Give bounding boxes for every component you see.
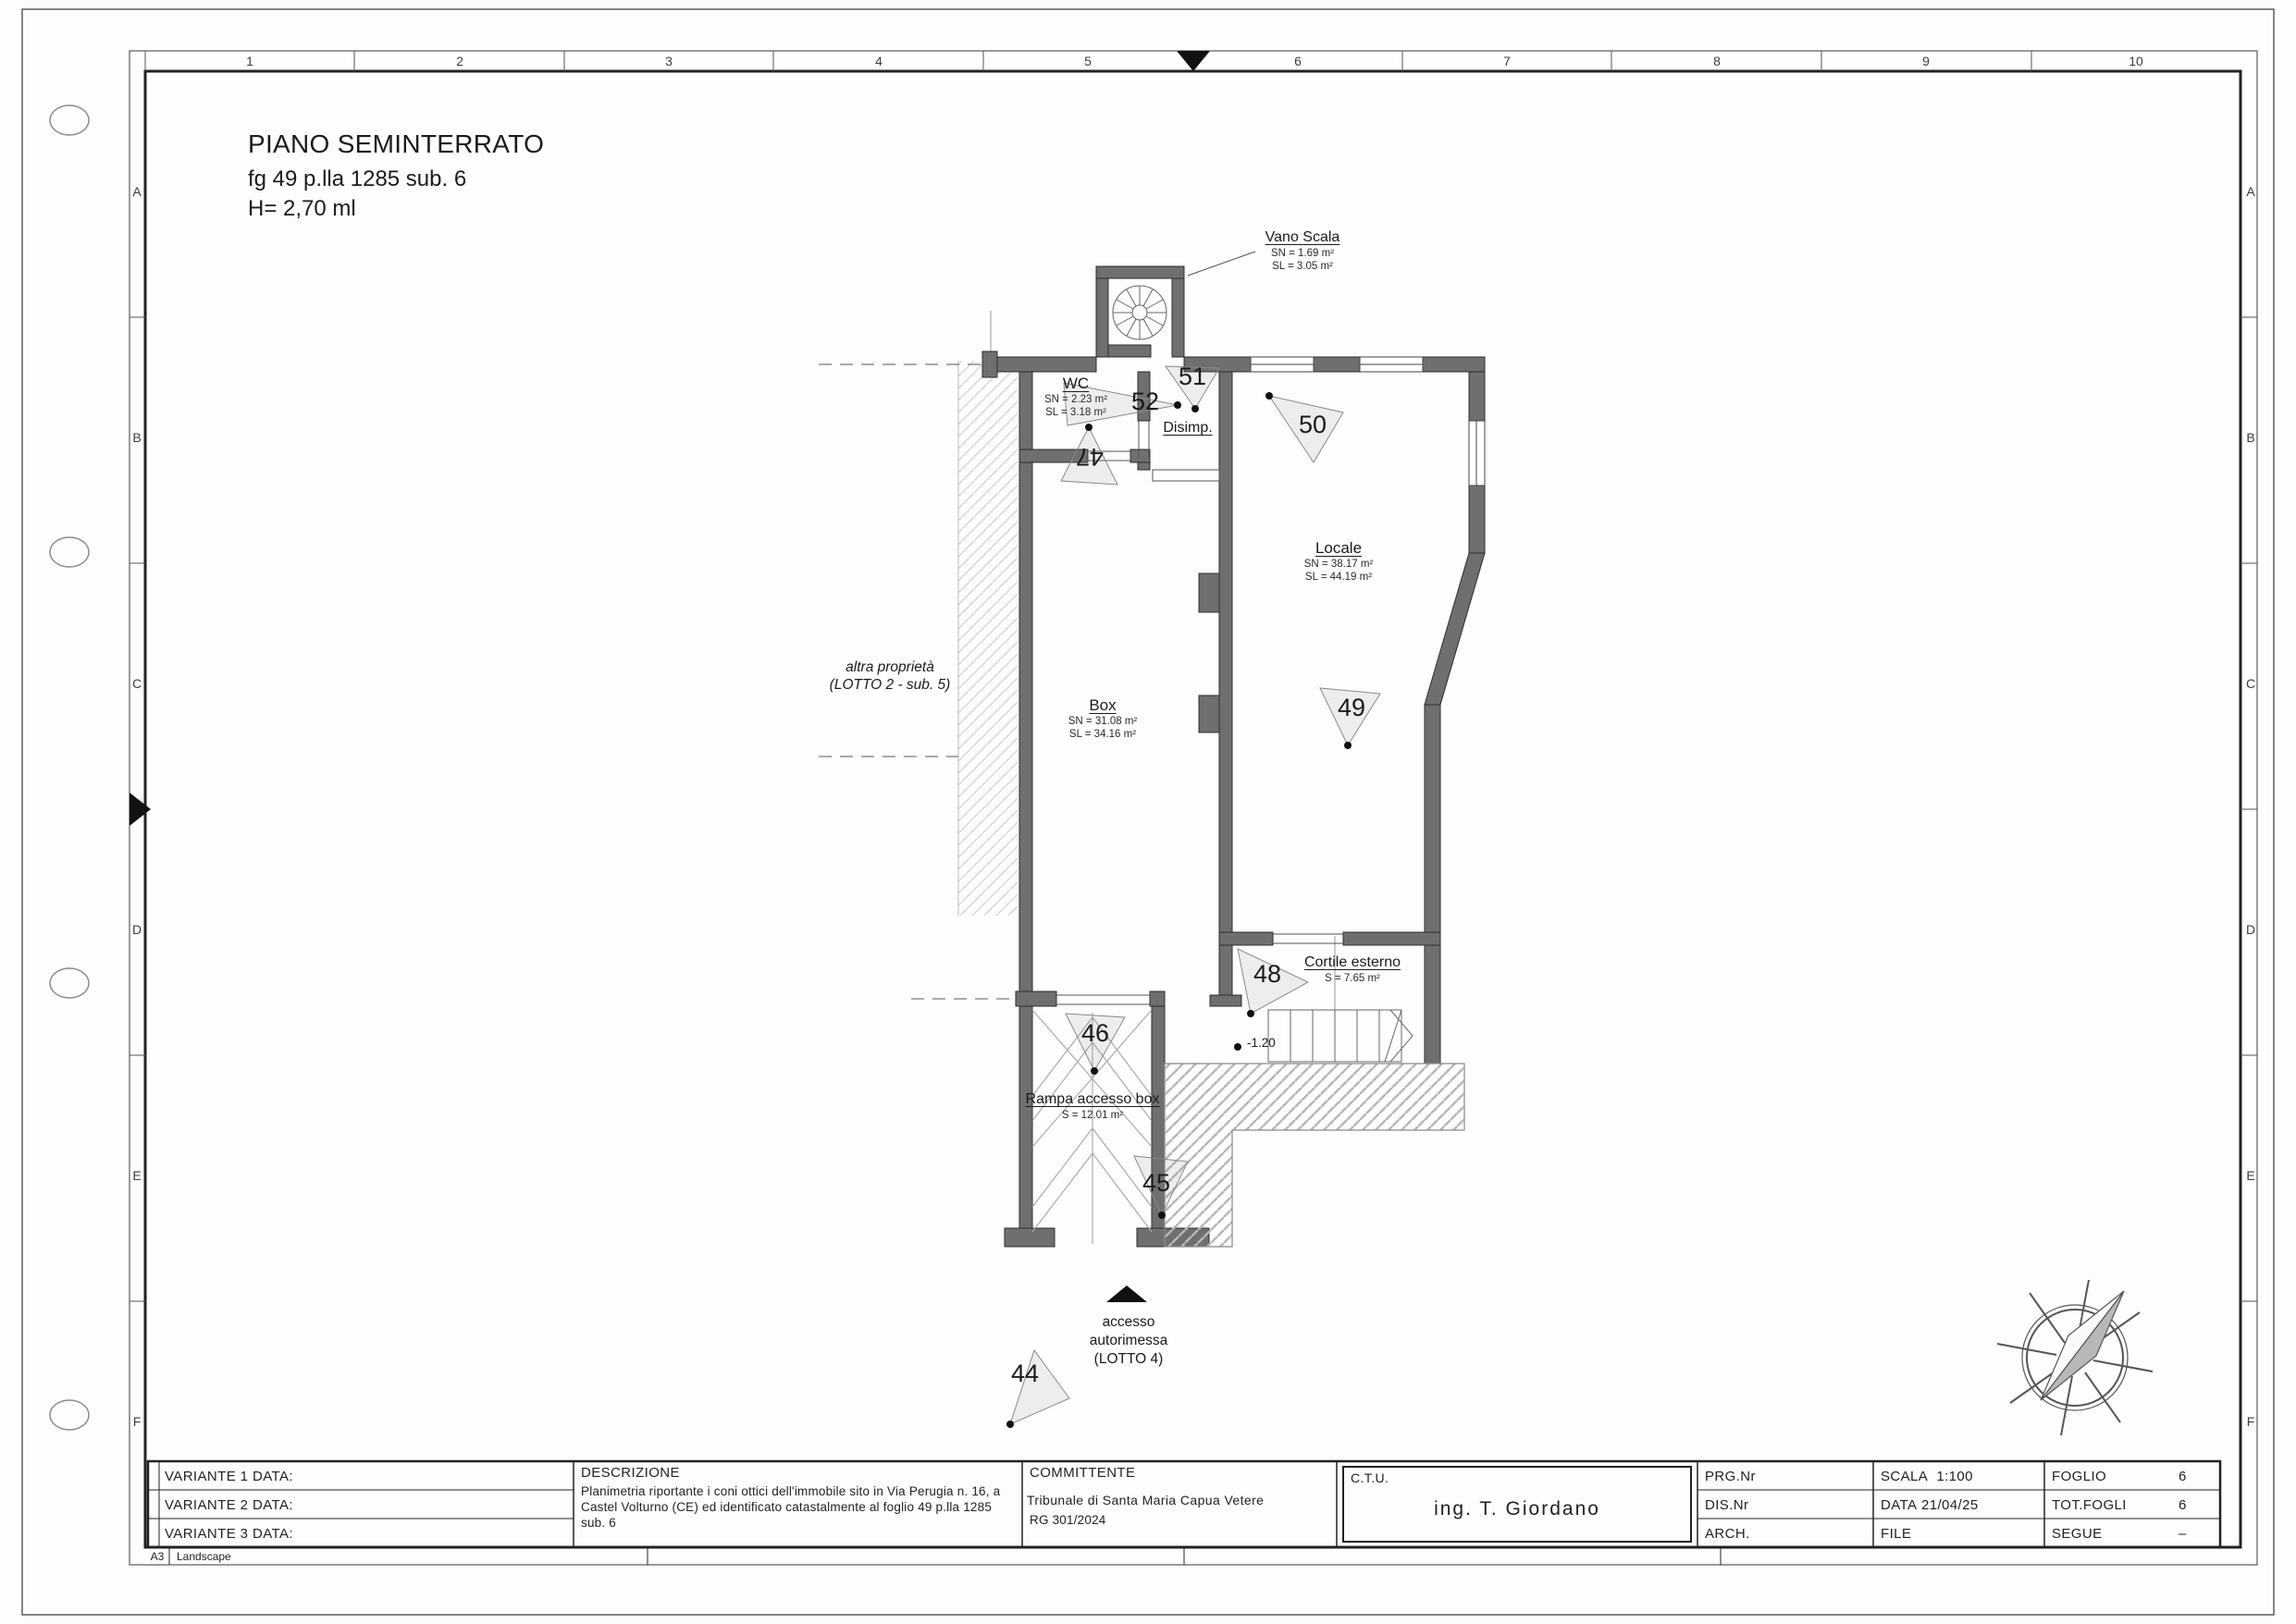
room-label-wc: WC SN = 2.23 m² SL = 3.18 m²	[1044, 374, 1107, 419]
plan-subtitle-height: H= 2,70 ml	[248, 196, 356, 222]
data-value: 21/04/25	[1921, 1497, 1979, 1513]
room-sn: SN = 31.08 m²	[1068, 715, 1137, 728]
scala-value: 1:100	[1936, 1469, 1973, 1484]
room-sn: SN = 1.69 m²	[1265, 247, 1340, 260]
level-mark-text: -1.20	[1247, 1036, 1276, 1050]
note-line: (LOTTO 2 - sub. 5)	[830, 676, 951, 694]
grid-col-8: 8	[1698, 54, 1735, 68]
room-sl: SL = 44.19 m²	[1304, 571, 1373, 584]
view-cone-52: 52	[1117, 388, 1173, 416]
room-label-vano-scala: Vano Scala SN = 1.69 m² SL = 3.05 m²	[1265, 228, 1340, 273]
grid-row-b-right: B	[2242, 430, 2259, 445]
totfogli-label: TOT.FOGLI	[2052, 1497, 2127, 1513]
room-name: Locale	[1304, 538, 1373, 558]
note-line: (LOTTO 4)	[1090, 1350, 1167, 1369]
drawing-sheet: PIANO SEMINTERRATO fg 49 p.lla 1285 sub.…	[0, 0, 2296, 1624]
view-cone-50: 50	[1285, 411, 1340, 439]
view-cone-47: 47	[1062, 442, 1117, 471]
segue-label: SEGUE	[2052, 1526, 2103, 1542]
leader-lines	[1188, 252, 1255, 276]
room-name: Cortile esterno	[1304, 953, 1401, 972]
view-cone-49: 49	[1324, 694, 1379, 722]
variante-2-field: VARIANTE 2 DATA:	[165, 1497, 293, 1513]
grid-row-f-right: F	[2242, 1414, 2259, 1429]
arch-label: ARCH.	[1705, 1526, 1750, 1542]
grid-col-10: 10	[2117, 54, 2154, 68]
view-cone-45: 45	[1129, 1169, 1184, 1198]
scala-label: SCALA	[1881, 1469, 1928, 1484]
view-cone-44: 44	[997, 1359, 1053, 1388]
grid-row-c-left: C	[129, 676, 145, 691]
room-s: S = 7.65 m²	[1304, 972, 1401, 985]
orientation-label: Landscape	[177, 1550, 231, 1563]
grid-row-c-right: C	[2242, 676, 2259, 691]
note-other-property: altra proprietà (LOTTO 2 - sub. 5)	[830, 658, 951, 694]
prg-nr-label: PRG.Nr	[1705, 1469, 1756, 1484]
compass-rose-icon	[1997, 1280, 2153, 1435]
room-label-box: Box SN = 31.08 m² SL = 34.16 m²	[1068, 695, 1137, 741]
ctu-label: C.T.U.	[1351, 1470, 1389, 1485]
grid-row-a-right: A	[2242, 184, 2259, 199]
file-field: FILE	[1881, 1526, 1911, 1542]
room-name: Rampa accesso box	[1026, 1089, 1160, 1109]
left-center-mark	[130, 793, 151, 826]
note-garage-access: accesso autorimessa (LOTTO 4)	[1090, 1313, 1167, 1369]
room-sl: SL = 3.05 m²	[1265, 260, 1340, 273]
plan-title: PIANO SEMINTERRATO	[248, 129, 544, 159]
grid-row-b-left: B	[129, 430, 145, 445]
room-name: Disimp.	[1163, 418, 1212, 437]
view-cones	[1006, 366, 1380, 1428]
external-stairs	[1268, 1010, 1413, 1062]
paving-hatch	[1165, 1064, 1464, 1247]
grid-col-4: 4	[860, 54, 897, 68]
grid-row-e-left: E	[129, 1168, 145, 1183]
note-line: altra proprietà	[830, 658, 951, 676]
dis-nr-label: DIS.Nr	[1705, 1497, 1748, 1513]
variante-3-field: VARIANTE 3 DATA:	[165, 1526, 293, 1542]
view-cone-48: 48	[1240, 960, 1295, 989]
room-sl: SL = 3.18 m²	[1044, 406, 1107, 419]
plan-subtitle-parcel: fg 49 p.lla 1285 sub. 6	[248, 166, 466, 192]
view-cone-46: 46	[1068, 1019, 1123, 1048]
grid-col-6: 6	[1279, 54, 1316, 68]
room-name: Box	[1068, 695, 1137, 715]
room-name: Vano Scala	[1265, 228, 1340, 247]
foglio-value: 6	[2179, 1469, 2187, 1484]
view-cone-51: 51	[1165, 363, 1220, 391]
other-property-hatch	[958, 361, 1018, 916]
data-field: DATA 21/04/25	[1881, 1497, 1979, 1513]
room-label-cortile: Cortile esterno S = 7.65 m²	[1304, 953, 1401, 985]
sheet-graphics	[0, 0, 2296, 1624]
committente-label: COMMITTENTE	[1030, 1465, 1135, 1481]
segue-value: –	[2179, 1526, 2187, 1542]
scala-field: SCALA 1:100	[1881, 1469, 1973, 1484]
room-sn: SN = 2.23 m²	[1044, 393, 1107, 406]
spiral-stair-icon	[1113, 286, 1167, 339]
room-sl: SL = 34.16 m²	[1068, 728, 1137, 741]
note-line: accesso	[1090, 1313, 1167, 1332]
grid-row-d-left: D	[129, 922, 145, 937]
foglio-label: FOGLIO	[2052, 1469, 2106, 1484]
committente-name: Tribunale di Santa Maria Capua Vetere	[1027, 1493, 1264, 1507]
grid-col-3: 3	[650, 54, 687, 68]
grid-row-a-left: A	[129, 184, 145, 199]
grid-col-1: 1	[231, 54, 268, 68]
punch-holes	[50, 105, 89, 1430]
level-mark-dot	[1234, 1043, 1241, 1051]
grid-col-7: 7	[1488, 54, 1525, 68]
totfogli-value: 6	[2179, 1497, 2187, 1513]
room-label-disimp: Disimp.	[1163, 418, 1212, 437]
ctu-name: ing. T. Giordano	[1434, 1498, 1600, 1520]
committente-rg: RG 301/2024	[1030, 1513, 1106, 1527]
room-sn: SN = 38.17 m²	[1304, 558, 1373, 571]
data-label: DATA	[1881, 1497, 1917, 1513]
grid-col-9: 9	[1907, 54, 1944, 68]
room-label-rampa: Rampa accesso box S = 12.01 m²	[1026, 1089, 1160, 1122]
variante-1-field: VARIANTE 1 DATA:	[165, 1469, 293, 1484]
grid-col-2: 2	[441, 54, 478, 68]
room-label-locale: Locale SN = 38.17 m² SL = 44.19 m²	[1304, 538, 1373, 584]
access-arrow-icon	[1106, 1286, 1147, 1302]
room-s: S = 12.01 m²	[1026, 1109, 1160, 1122]
room-name: WC	[1044, 374, 1107, 393]
sheet-frame	[22, 9, 2274, 1615]
descrizione-label: DESCRIZIONE	[581, 1465, 680, 1481]
top-center-mark	[1177, 51, 1210, 71]
paper-size-label: A3	[145, 1550, 169, 1563]
descrizione-text: Planimetria riportante i coni ottici del…	[581, 1483, 1014, 1531]
grid-row-d-right: D	[2242, 922, 2259, 937]
note-line: autorimessa	[1090, 1332, 1167, 1350]
grid-row-e-right: E	[2242, 1168, 2259, 1183]
grid-row-f-left: F	[129, 1414, 145, 1429]
grid-col-5: 5	[1069, 54, 1106, 68]
